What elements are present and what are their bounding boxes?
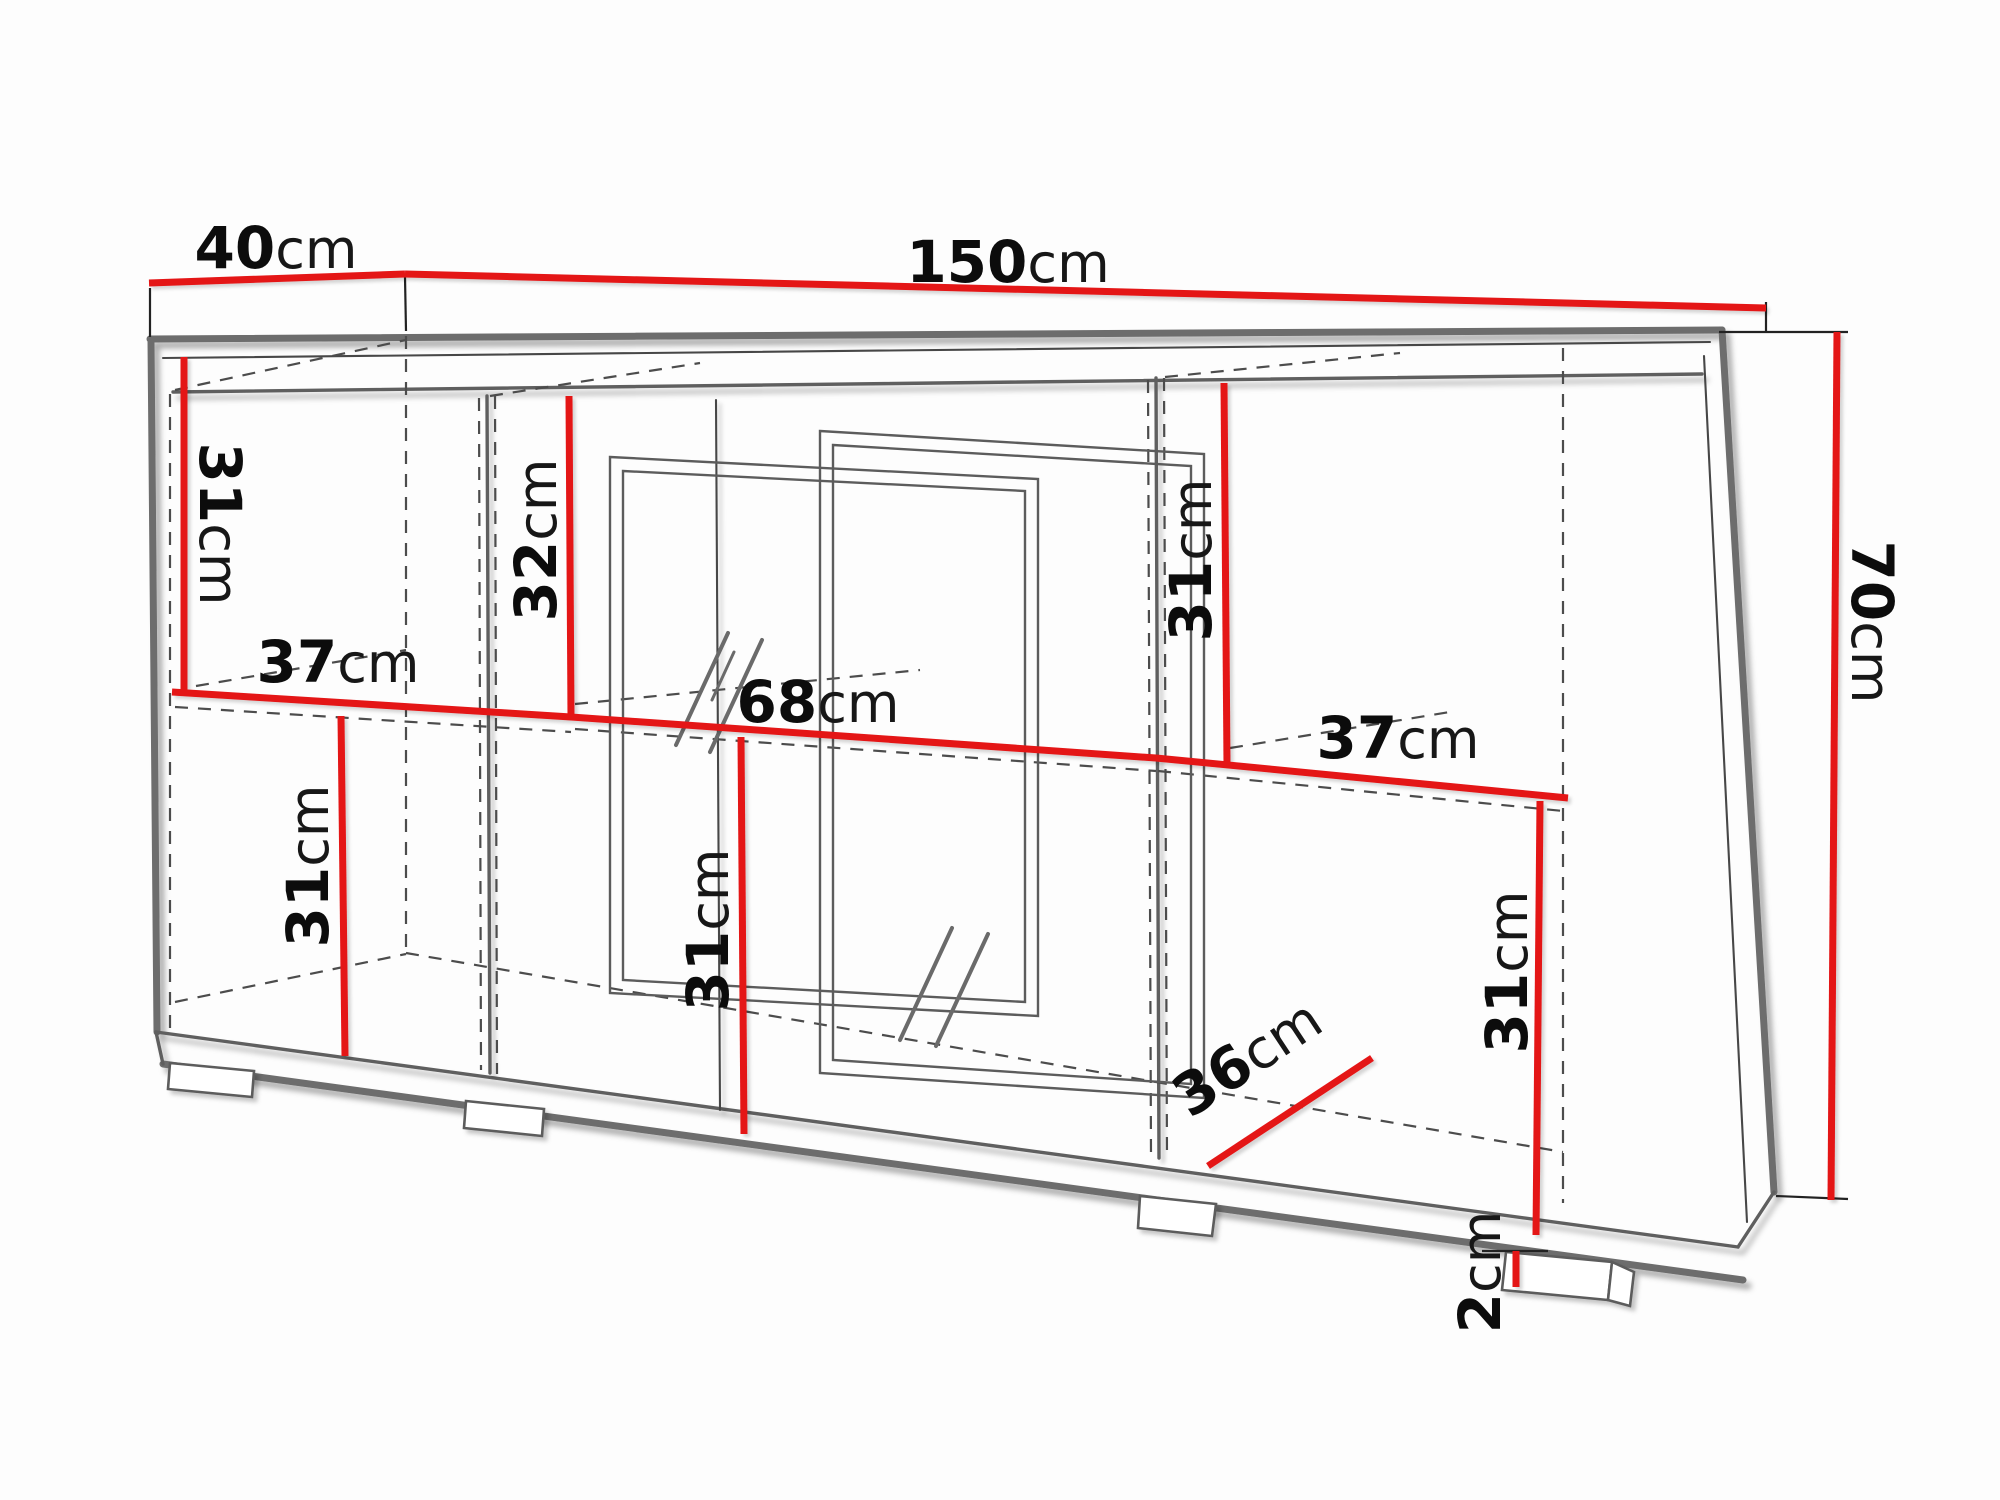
- dim-label-right-upper-h: 31cm: [1157, 478, 1225, 641]
- dim-label-right-lower-h: 31cm: [1473, 890, 1541, 1053]
- feet: [168, 1063, 1634, 1306]
- foot-4-side: [1608, 1262, 1634, 1306]
- glass-door-right-frame: [820, 431, 1204, 1098]
- dimension-lines: [149, 274, 1837, 1287]
- foot-2: [464, 1101, 544, 1136]
- dim-label-right-shelf-d: 37cm: [1316, 704, 1479, 772]
- cabinet-outline: [150, 330, 1774, 1280]
- dim-label-depth-top: 40cm: [194, 214, 357, 282]
- dim-label-foot-h: 2cm: [1446, 1211, 1514, 1334]
- dim-label-right-lower-d: 36cm: [1160, 984, 1333, 1131]
- foot-1: [168, 1063, 254, 1097]
- dim-label-mid-inner-w: 68cm: [736, 668, 899, 736]
- front-dividers: [487, 378, 1159, 1158]
- dim-label-mid-lower-h: 31cm: [674, 848, 742, 1011]
- dim-label-width-top: 150cm: [906, 228, 1109, 296]
- dim-label-height-right: 70cm: [1838, 540, 1906, 703]
- dim-line-height-right: [1831, 332, 1837, 1200]
- dim-label-mid-upper-h: 32cm: [502, 458, 570, 621]
- dim-label-left-lower-h: 31cm: [274, 784, 342, 947]
- extension-ticks: [150, 277, 1848, 1251]
- diagram-canvas: 40cm 150cm 70cm 31cm 37cm 32cm 68cm 31cm…: [0, 0, 2000, 1500]
- furniture-dimension-diagram: 40cm 150cm 70cm 31cm 37cm 32cm 68cm 31cm…: [0, 0, 2000, 1500]
- foot-3: [1138, 1196, 1216, 1236]
- dim-label-left-upper-h: 31cm: [186, 442, 254, 605]
- glass-reflection-lower: [900, 928, 988, 1046]
- dim-label-left-shelf-d: 37cm: [256, 628, 419, 696]
